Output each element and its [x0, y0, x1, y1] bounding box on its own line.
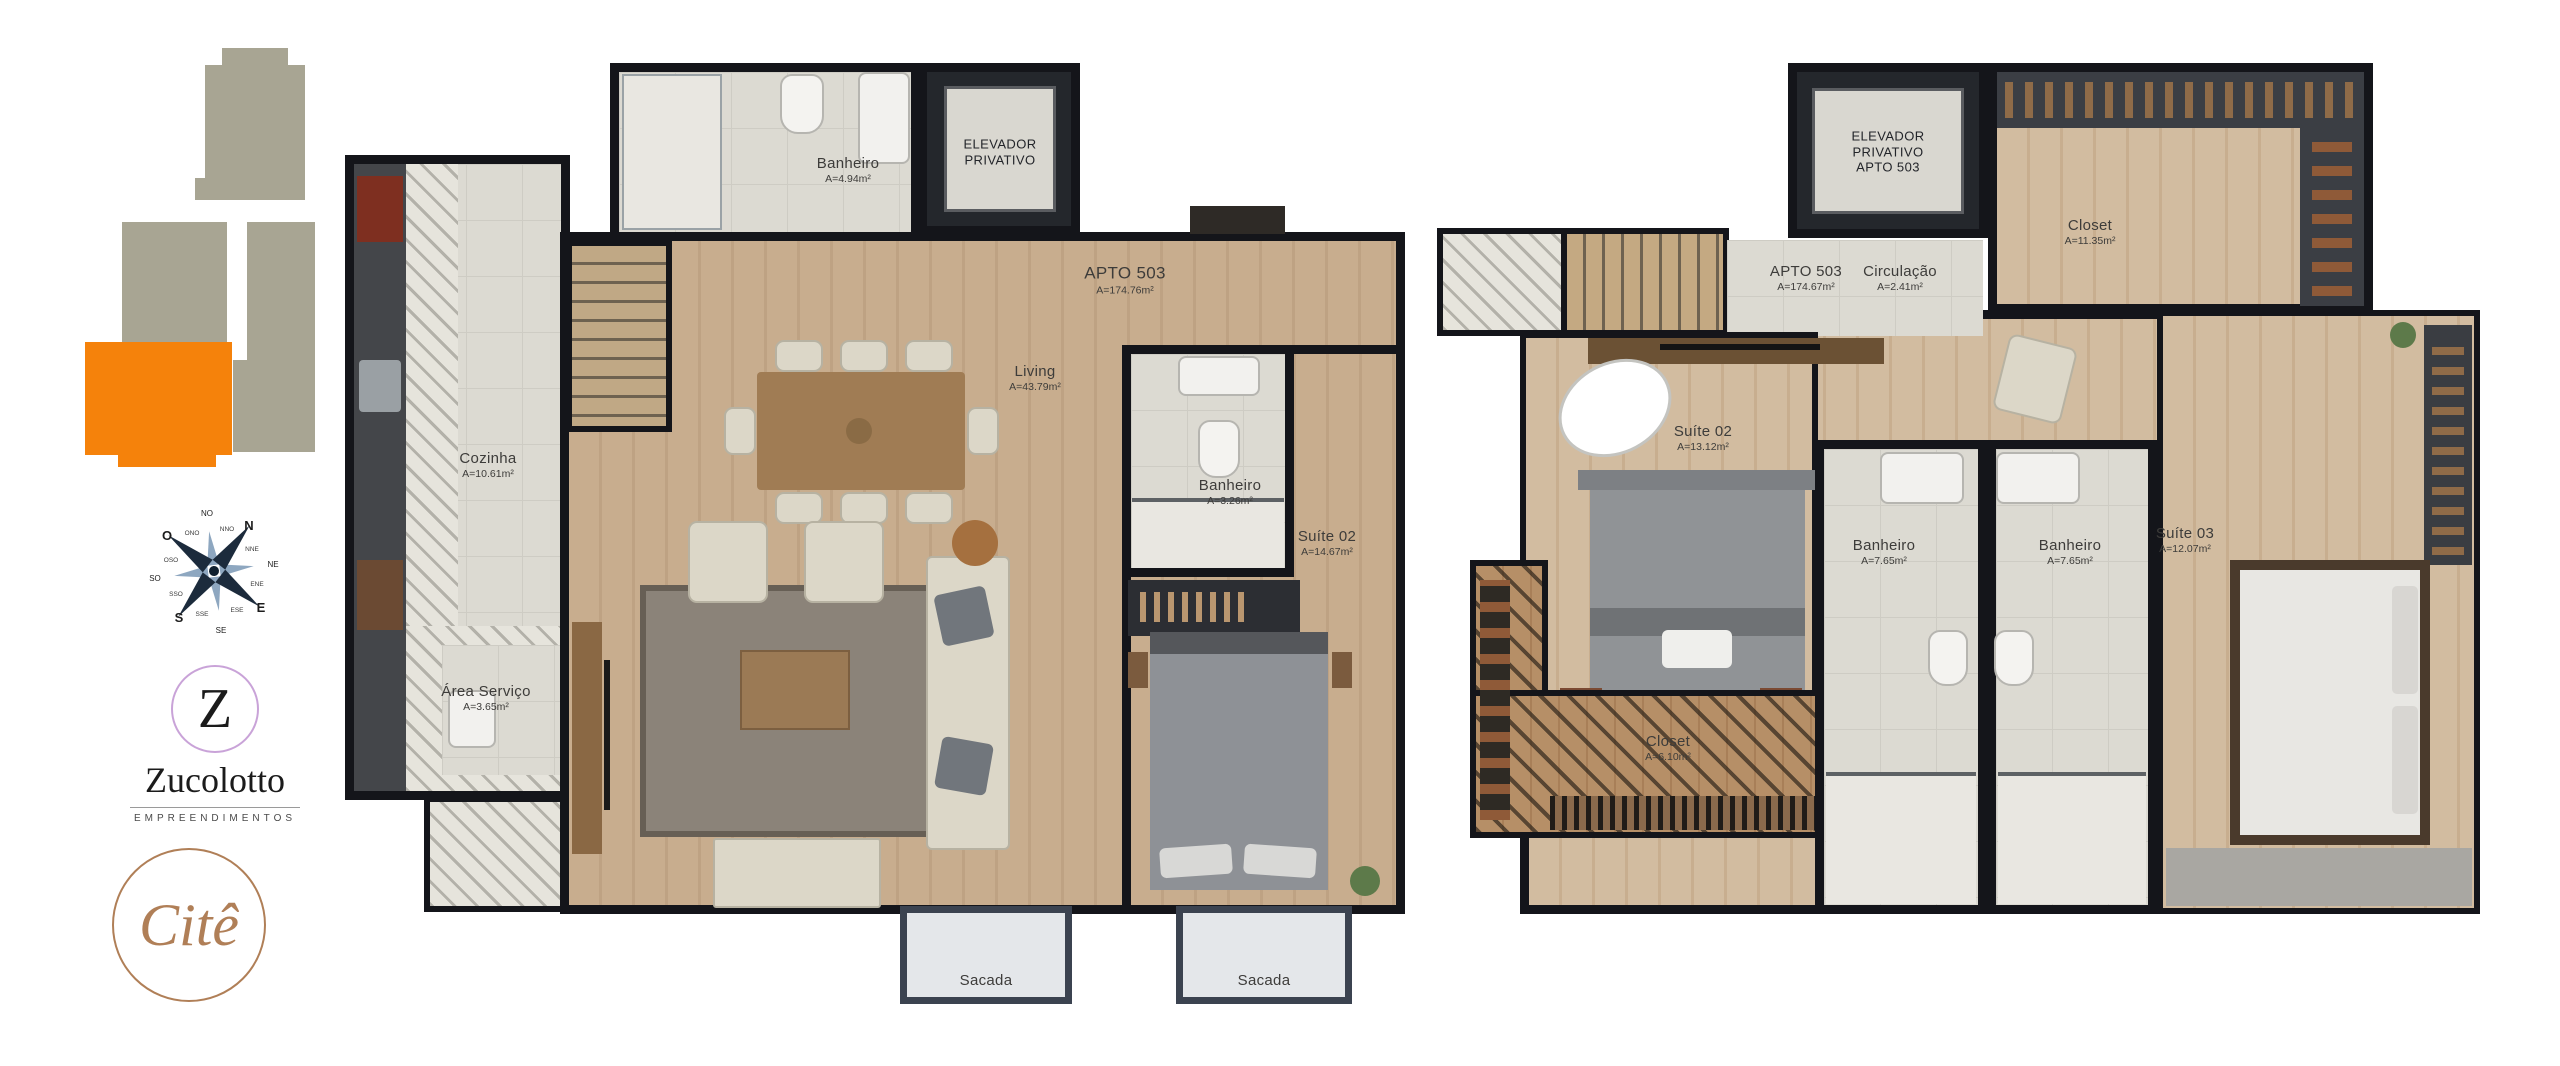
svg-text:NNE: NNE — [245, 546, 259, 553]
building-block — [195, 178, 225, 200]
room-label-sacada: Sacada — [1238, 972, 1291, 989]
room-label-banheiro-social: Banheiro A=4.94m² — [817, 155, 879, 185]
room-label-suite02-upper: Suíte 02 A=13.12m² — [1674, 423, 1732, 453]
building-block-highlighted — [85, 342, 232, 455]
closet-shoe-rack — [1480, 580, 1510, 820]
svg-text:O: O — [162, 528, 172, 543]
dining-chair — [840, 340, 888, 372]
svg-text:OSO: OSO — [164, 557, 178, 564]
unit-label-apto503: APTO 503 A=174.76m² — [1084, 264, 1165, 297]
building-block-highlighted — [118, 455, 216, 467]
staircase — [566, 240, 672, 432]
wardrobe-items — [1140, 592, 1250, 622]
shower-floor — [1826, 772, 1976, 904]
room-label-banheiro-suite: Banheiro A=3.26m² — [1199, 477, 1261, 507]
refrigerator — [357, 560, 403, 630]
stair-void-hatch — [1437, 228, 1567, 336]
sacada-right: Sacada — [1176, 906, 1352, 1004]
toilet — [1928, 630, 1968, 686]
toilet — [1198, 420, 1240, 478]
dining-chair — [724, 407, 756, 455]
room-label-elevador-503: ELEVADOR PRIVATIVO APTO 503 — [1851, 129, 1924, 176]
floor-rug — [2166, 848, 2472, 906]
plant — [2390, 322, 2416, 348]
room-label-elevador: ELEVADOR PRIVATIVO — [963, 136, 1036, 167]
wall-credenza — [1190, 206, 1285, 234]
kitchen-appliance-counter — [354, 164, 406, 791]
coffee-table — [740, 650, 850, 730]
dining-chair — [905, 340, 953, 372]
building-block — [222, 48, 288, 68]
svg-text:SO: SO — [149, 574, 161, 583]
bed-pillow — [1662, 630, 1732, 668]
svg-text:NO: NO — [201, 509, 213, 518]
svg-text:SSE: SSE — [195, 611, 209, 618]
room-label-suite02: Suíte 02 A=14.67m² — [1298, 528, 1356, 558]
bathroom-vanity — [1178, 356, 1260, 396]
bathroom-vanity — [1996, 452, 2080, 504]
compass-rose-icon: N E S O NE SE SO NO NNE ENE ESE SSE SSO … — [132, 482, 297, 660]
svg-text:NE: NE — [267, 560, 278, 569]
dining-chair — [840, 492, 888, 524]
closet-hanging-rail — [1550, 796, 1820, 830]
logo-divider — [130, 807, 300, 808]
closet-strip-items — [2432, 335, 2464, 555]
room-label-cozinha: Cozinha A=10.61m² — [459, 450, 516, 480]
bed-throw — [1150, 632, 1328, 654]
shower-stall — [622, 74, 722, 230]
room-label-closet-bottom: Closet A=6.10m² — [1645, 733, 1691, 763]
staircase-upper — [1561, 228, 1729, 336]
room-label-living: Living A=43.79m² — [1009, 363, 1061, 393]
svg-text:S: S — [175, 610, 184, 625]
closet-shoes — [2312, 138, 2352, 296]
bed-pillow — [1159, 844, 1233, 879]
closet-shelf-items — [2005, 82, 2355, 118]
shower-floor — [1132, 498, 1284, 568]
room-label-suite03: Suíte 03 A=12.07m² — [2156, 525, 2214, 555]
dining-chair — [967, 407, 999, 455]
sidebar: N E S O NE SE SO NO NNE ENE ESE SSE SSO … — [0, 0, 340, 1066]
armchair — [804, 521, 884, 603]
sofa-cushion — [934, 736, 994, 796]
bed-pillow — [1243, 844, 1317, 879]
circulacao-floor — [1727, 240, 1983, 336]
bed-pillow — [2392, 706, 2418, 814]
svg-text:E: E — [257, 600, 266, 615]
room-label-banheiro-upper-right: Banheiro A=7.65m² — [2039, 537, 2101, 567]
lower-hatch-zone — [424, 796, 566, 912]
nightstand — [1128, 652, 1148, 688]
toilet — [780, 74, 824, 134]
tv-console — [572, 622, 602, 854]
nightstand — [1332, 652, 1352, 688]
sacada-left: Sacada — [900, 906, 1072, 1004]
svg-text:SE: SE — [216, 626, 227, 635]
zucolotto-logo: Z Zucolotto EMPREENDIMENTOS — [115, 665, 315, 824]
armchair — [688, 521, 768, 603]
floorplan-sheet: N E S O NE SE SO NO NNE ENE ESE SSE SSO … — [0, 0, 2560, 1066]
dining-chair — [905, 492, 953, 524]
room-label-banheiro-upper-left: Banheiro A=7.65m² — [1853, 537, 1915, 567]
room-label-sacada: Sacada — [960, 972, 1013, 989]
kitchen-sink — [359, 360, 401, 412]
svg-text:ONO: ONO — [185, 530, 200, 537]
shower-floor — [1998, 772, 2146, 904]
dining-chair — [775, 340, 823, 372]
svg-text:NNO: NNO — [220, 526, 234, 533]
svg-text:ESE: ESE — [230, 607, 244, 614]
cooktop — [357, 176, 403, 242]
cite-name: Citê — [139, 891, 239, 960]
bed-pillow — [2392, 586, 2418, 694]
room-label-circulacao: Circulação A=2.41m² — [1863, 263, 1937, 293]
bathroom-vanity — [858, 72, 910, 164]
table-centerpiece — [846, 418, 872, 444]
kitchen-floor-hatch — [406, 164, 458, 626]
tv-screen — [604, 660, 610, 810]
bench-seat — [713, 838, 881, 908]
bed-headboard — [1578, 470, 1817, 490]
zucolotto-name: Zucolotto — [115, 759, 315, 801]
side-table — [952, 520, 998, 566]
unit-label-apto503-upper: APTO 503 A=174.67m² — [1770, 263, 1842, 293]
svg-text:N: N — [244, 518, 253, 533]
building-locator-diagram — [0, 0, 340, 470]
building-block — [233, 360, 273, 452]
sofa-cushion — [933, 585, 995, 647]
room-label-closet-top: Closet A=11.35m² — [2065, 217, 2116, 247]
building-block — [122, 222, 227, 342]
zucolotto-monogram: Z — [171, 665, 259, 753]
zucolotto-tagline: EMPREENDIMENTOS — [115, 813, 315, 824]
bathroom-vanity — [1880, 452, 1964, 504]
cite-logo: Citê — [112, 848, 266, 1002]
toilet — [1994, 630, 2034, 686]
dining-chair — [775, 492, 823, 524]
svg-text:ENE: ENE — [250, 581, 264, 588]
plant — [1350, 866, 1380, 896]
room-label-area-servico: Área Serviço A=3.65m² — [441, 683, 530, 713]
svg-text:SSO: SSO — [169, 591, 183, 598]
tv-bar — [1660, 344, 1820, 350]
